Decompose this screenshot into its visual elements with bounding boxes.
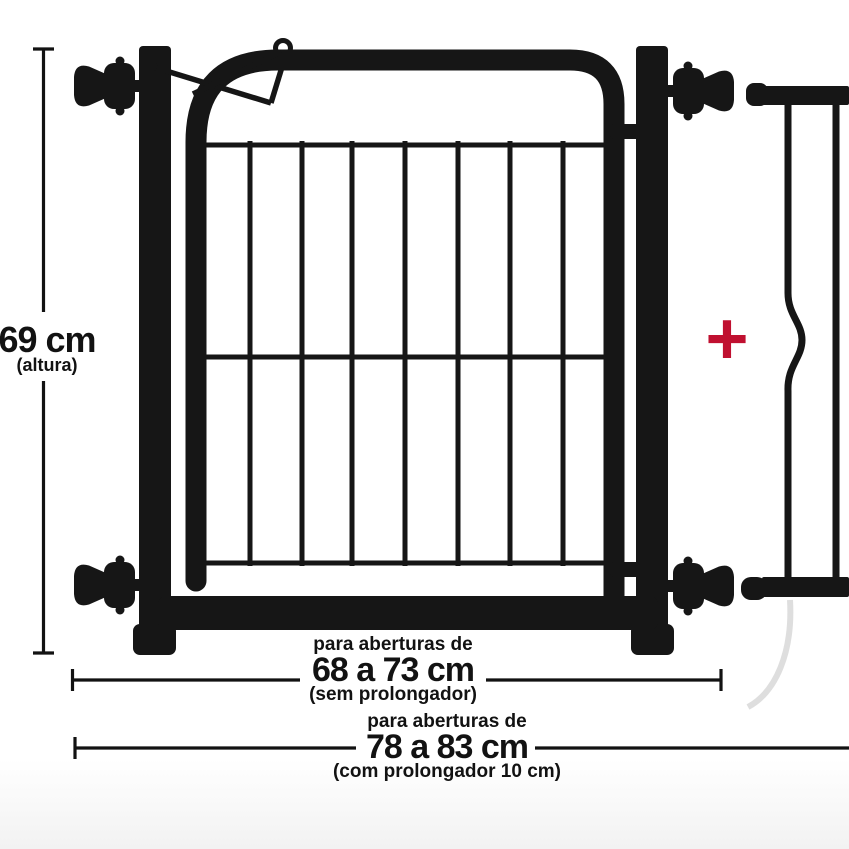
plus-icon: +: [694, 300, 760, 378]
height-qualifier-label: (altura): [0, 355, 96, 376]
pressure-knob-top-left: [74, 57, 142, 116]
extension-top-rail: [760, 86, 849, 105]
opening2-qualifier: (com prolongador 10 cm): [312, 761, 582, 782]
hinge-bracket-top: [610, 124, 640, 139]
opening-with-extension-label: para aberturas de 78 a 83 cm (com prolon…: [312, 711, 582, 782]
pressure-knob-bottom-left: [74, 556, 142, 615]
opening1-qualifier: (sem prolongador): [283, 684, 503, 705]
pressure-knob-bottom-right: [666, 557, 734, 616]
extension-bottom-rail: [762, 577, 849, 597]
floor-shadow: [748, 600, 790, 707]
extension-bar-wavy: [788, 102, 802, 580]
opening-without-extension-label: para aberturas de 68 a 73 cm (sem prolon…: [283, 634, 503, 705]
gate-mesh: [202, 141, 610, 566]
product-diagram: 69 cm (altura) para aberturas de 68 a 73…: [0, 0, 849, 849]
opening2-value: 78 a 83 cm: [312, 733, 582, 761]
gate-door-frame: [196, 60, 640, 600]
hinge-bracket-bottom: [610, 562, 640, 577]
bottom-frame-tube: [158, 596, 658, 630]
opening1-value: 68 a 73 cm: [283, 656, 503, 684]
pressure-knob-top-right: [666, 62, 734, 121]
left-pressure-post: [133, 46, 176, 655]
